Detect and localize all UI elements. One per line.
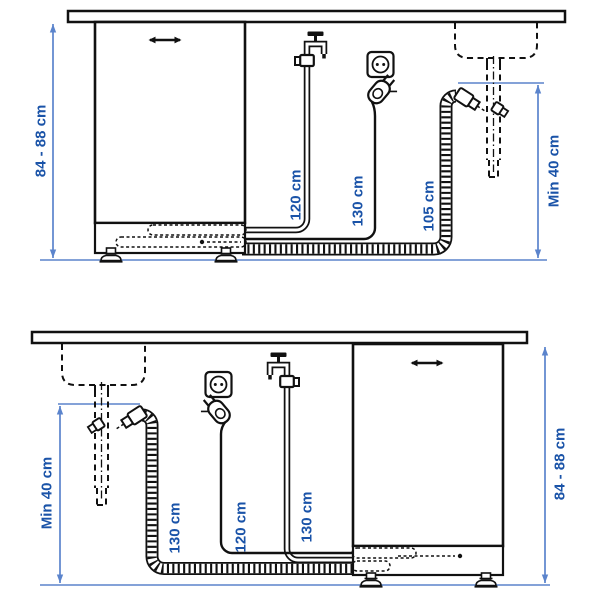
drain-pipe-branch (87, 418, 105, 435)
countertop (32, 332, 527, 343)
panel-bottom: Min 40 cm 130 cm 120 cm 130 cm 84 - 88 c… (32, 332, 569, 587)
drain-min-height-label: Min 40 cm (39, 457, 56, 530)
cabinet-height-label: 84 - 88 cm (552, 428, 569, 501)
countertop (68, 11, 565, 22)
diagram-canvas: 84 - 88 cm 120 cm 130 cm 105 cm Min 40 c… (0, 0, 600, 600)
drain-hose-connector (454, 87, 490, 117)
water-tap-icon (270, 353, 299, 388)
drain-hose-connector (111, 405, 147, 435)
drain-min-height-label: Min 40 cm (546, 135, 563, 208)
drain-pipe (95, 382, 108, 505)
hose-leader-dot (200, 240, 204, 244)
drain-hose-label: 130 cm (167, 503, 184, 554)
power-outlet-icon (368, 52, 394, 77)
water-tap-icon (295, 32, 324, 67)
power-outlet-icon (206, 372, 232, 397)
drain-hose-label: 105 cm (421, 181, 438, 232)
power-cord-label: 130 cm (350, 176, 367, 227)
drain-pipe-branch (491, 102, 509, 119)
power-cord-label: 120 cm (233, 502, 250, 553)
supply-hose-label: 130 cm (299, 492, 316, 543)
drain-pipe (487, 56, 500, 177)
sink-basin (455, 23, 537, 64)
cabinet-height-label: 84 - 88 cm (33, 105, 50, 178)
installation-diagram: 84 - 88 cm 120 cm 130 cm 105 cm Min 40 c… (0, 0, 600, 600)
sink-basin (62, 344, 145, 391)
dishwasher-cabinet (95, 22, 245, 223)
supply-hose-label: 120 cm (288, 170, 305, 221)
dishwasher-cabinet (353, 344, 503, 546)
panel-top: 84 - 88 cm 120 cm 130 cm 105 cm Min 40 c… (33, 11, 566, 262)
hose-leader-dot (458, 554, 462, 558)
